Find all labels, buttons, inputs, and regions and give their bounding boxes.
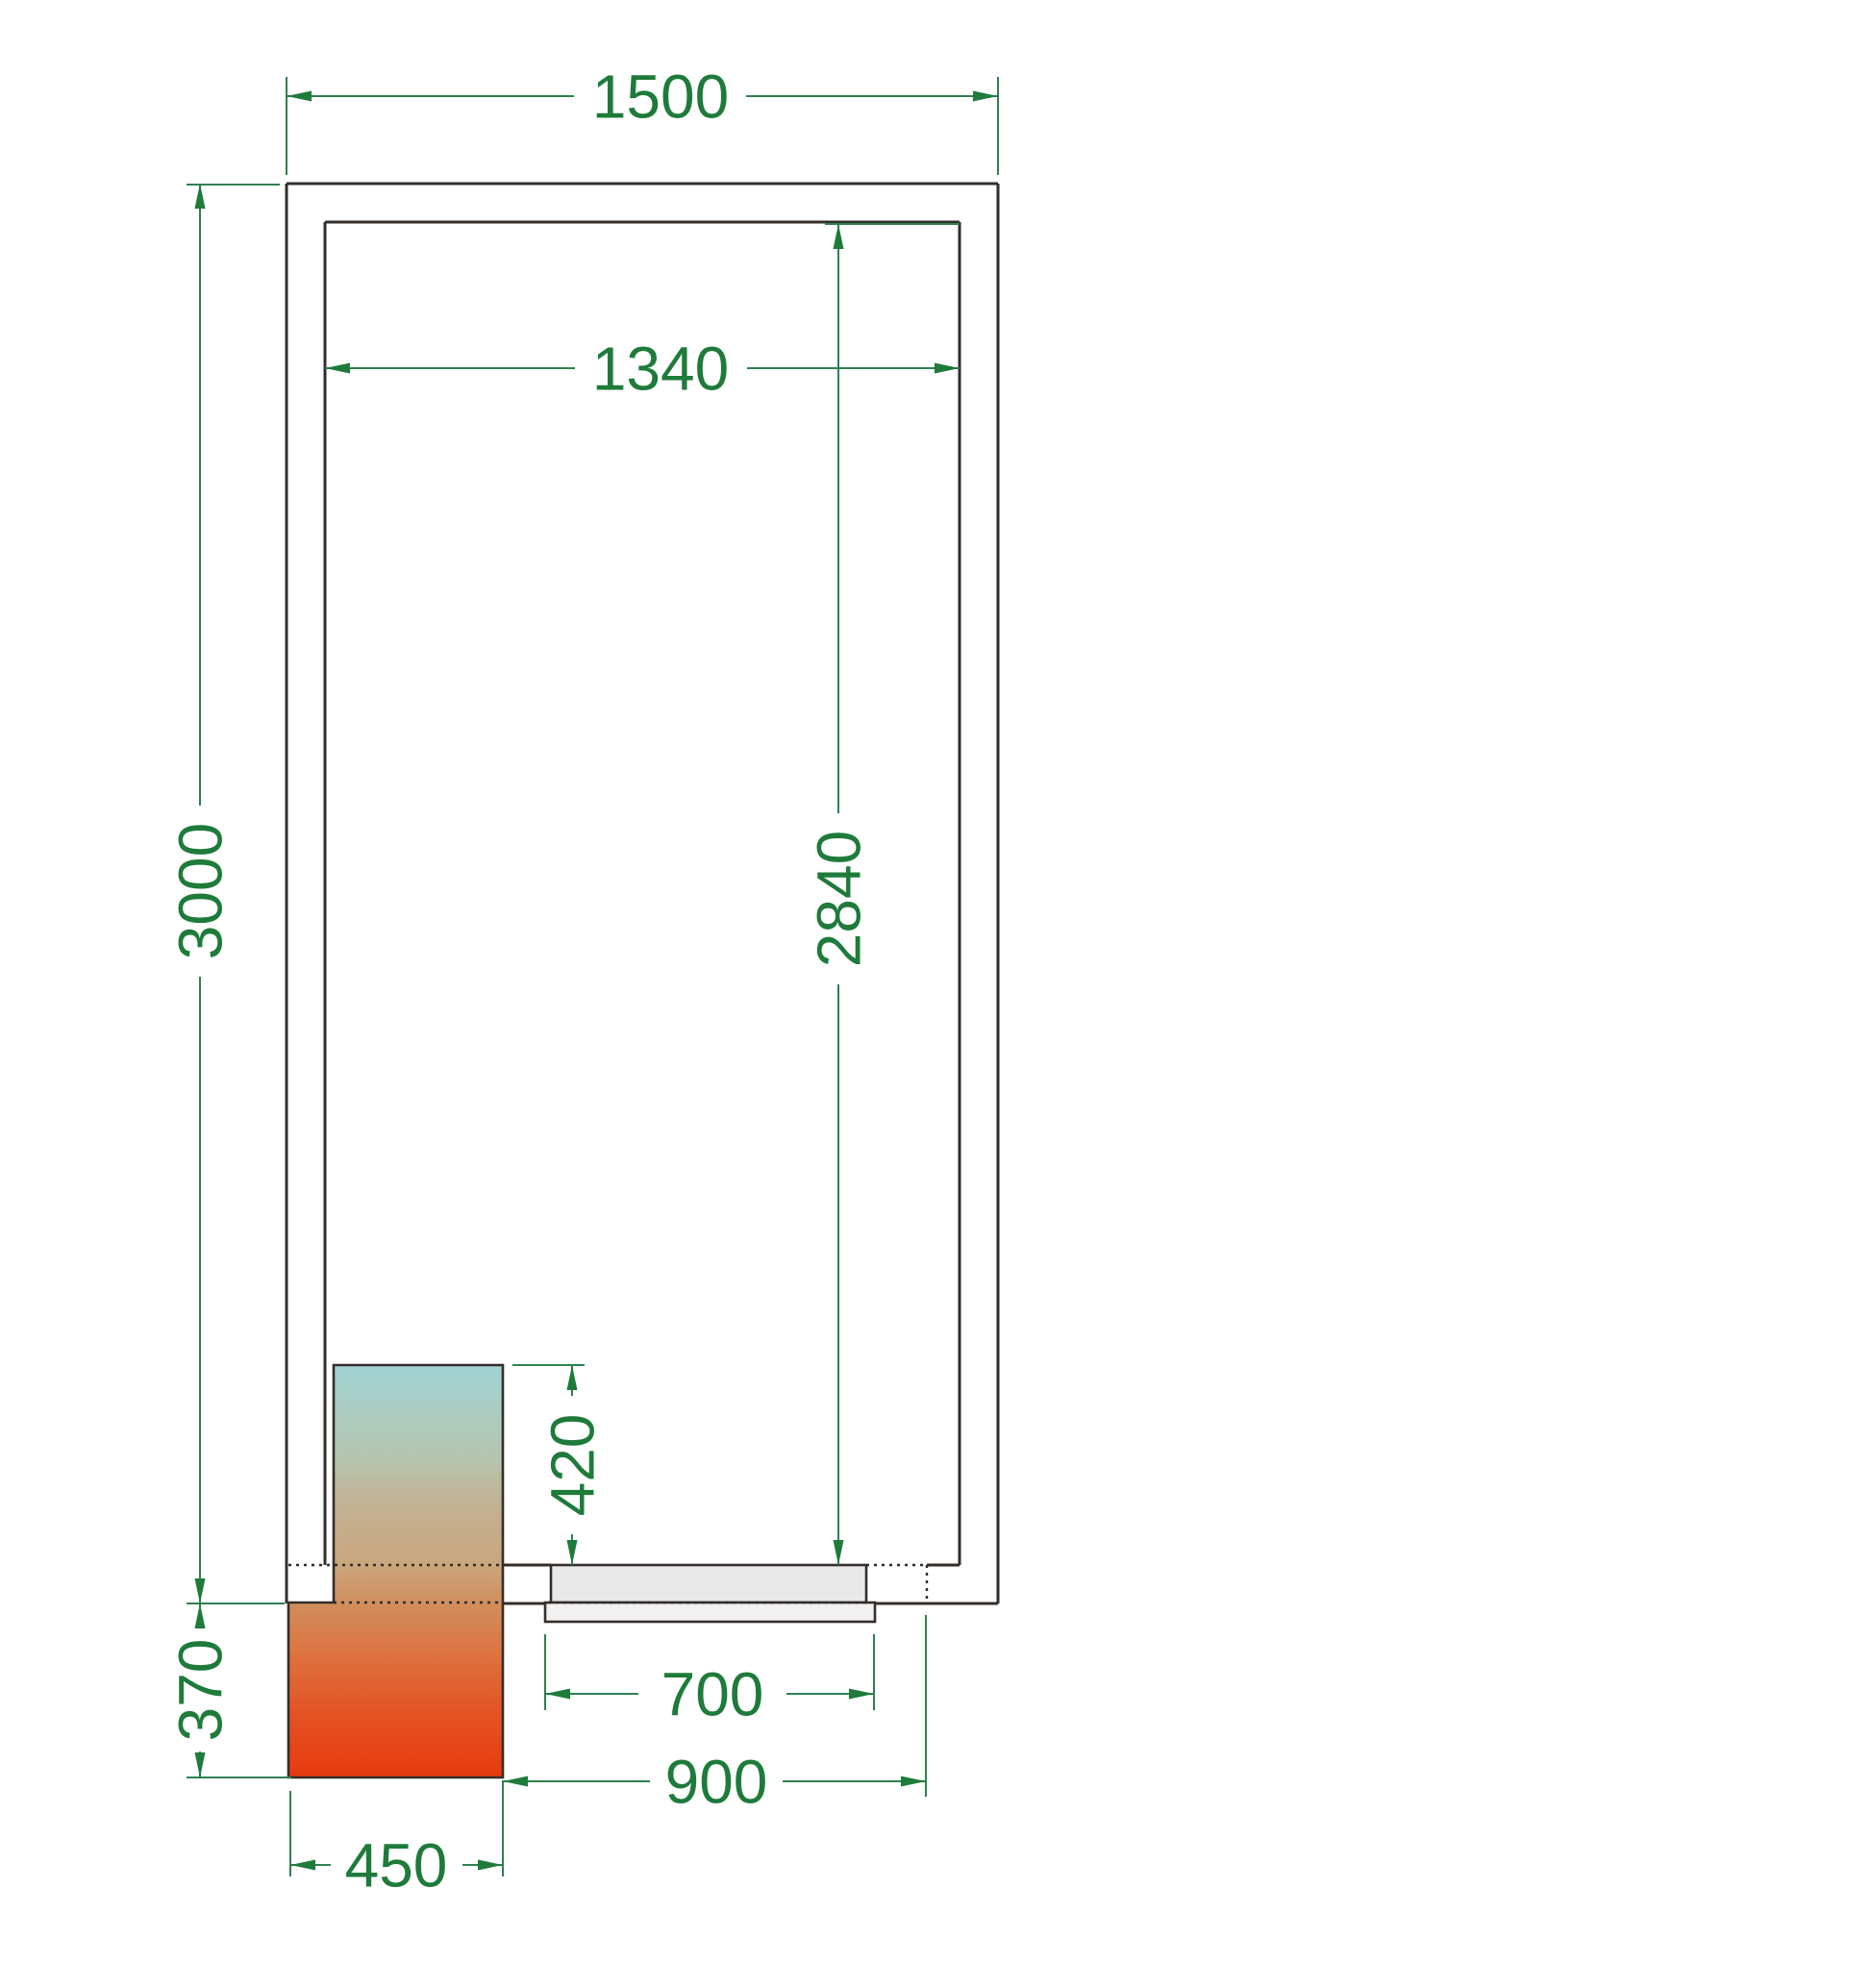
dim-unit-inside-depth: 420 (512, 1365, 607, 1565)
dim-outer-depth-arrow-bottom (195, 1578, 206, 1603)
dim-unit-width: 450 (290, 1780, 503, 1900)
dim-door-leaf: 700 (545, 1634, 874, 1728)
dim-unit-inside-label: 420 (537, 1414, 607, 1517)
cooling-unit (288, 1365, 503, 1777)
dim-outer-depth-label: 3000 (165, 823, 235, 959)
dim-unit-width-label: 450 (345, 1830, 448, 1900)
dim-inner-width-label: 1340 (592, 334, 729, 403)
floor-plan-canvas: 1500 1340 3000 2840 420 (0, 0, 1871, 1988)
dim-inner-depth-arrow-bottom (834, 1540, 844, 1565)
dim-unit-outside-arrow-bottom (195, 1752, 206, 1777)
dim-door-frame-arrow-left (503, 1777, 528, 1787)
dim-inner-depth: 2840 (804, 224, 960, 1565)
dim-unit-width-arrow-left (290, 1860, 315, 1871)
drawing-sheet: 1500 1340 3000 2840 420 (0, 0, 1871, 1988)
dim-inner-depth-arrow-top (834, 224, 844, 249)
dim-outer-width-arrow-right (973, 91, 998, 102)
door-leaf-outer-panel (545, 1603, 875, 1622)
dim-inner-depth-label: 2840 (804, 831, 873, 967)
dim-door-leaf-arrow-right (849, 1689, 874, 1700)
dim-unit-outside-depth: 370 (165, 1603, 291, 1777)
dim-outer-depth-arrow-top (195, 184, 206, 209)
door (545, 1565, 875, 1622)
dim-door-frame-arrow-right (901, 1777, 926, 1787)
dim-inner-width-arrow-right (935, 363, 960, 374)
dim-door-frame-label: 900 (665, 1747, 768, 1816)
dim-outer-width-arrow-left (287, 91, 312, 102)
dim-unit-outside-label: 370 (165, 1639, 235, 1742)
dim-inner-width-arrow-left (325, 363, 350, 374)
dim-unit-inside-arrow-bottom (567, 1540, 578, 1565)
dim-door-leaf-arrow-left (545, 1689, 570, 1700)
dim-unit-outside-arrow-top (195, 1603, 206, 1628)
dim-outer-depth: 3000 (165, 184, 285, 1603)
dim-unit-inside-arrow-top (567, 1365, 578, 1390)
dim-outer-width-label: 1500 (592, 62, 729, 131)
dim-outer-width: 1500 (287, 62, 998, 175)
cooling-unit-body (288, 1365, 503, 1777)
dim-door-leaf-label: 700 (661, 1659, 764, 1728)
door-leaf-inner-panel (551, 1565, 866, 1603)
dim-unit-width-arrow-right (478, 1860, 503, 1871)
dim-inner-width: 1340 (325, 334, 960, 403)
